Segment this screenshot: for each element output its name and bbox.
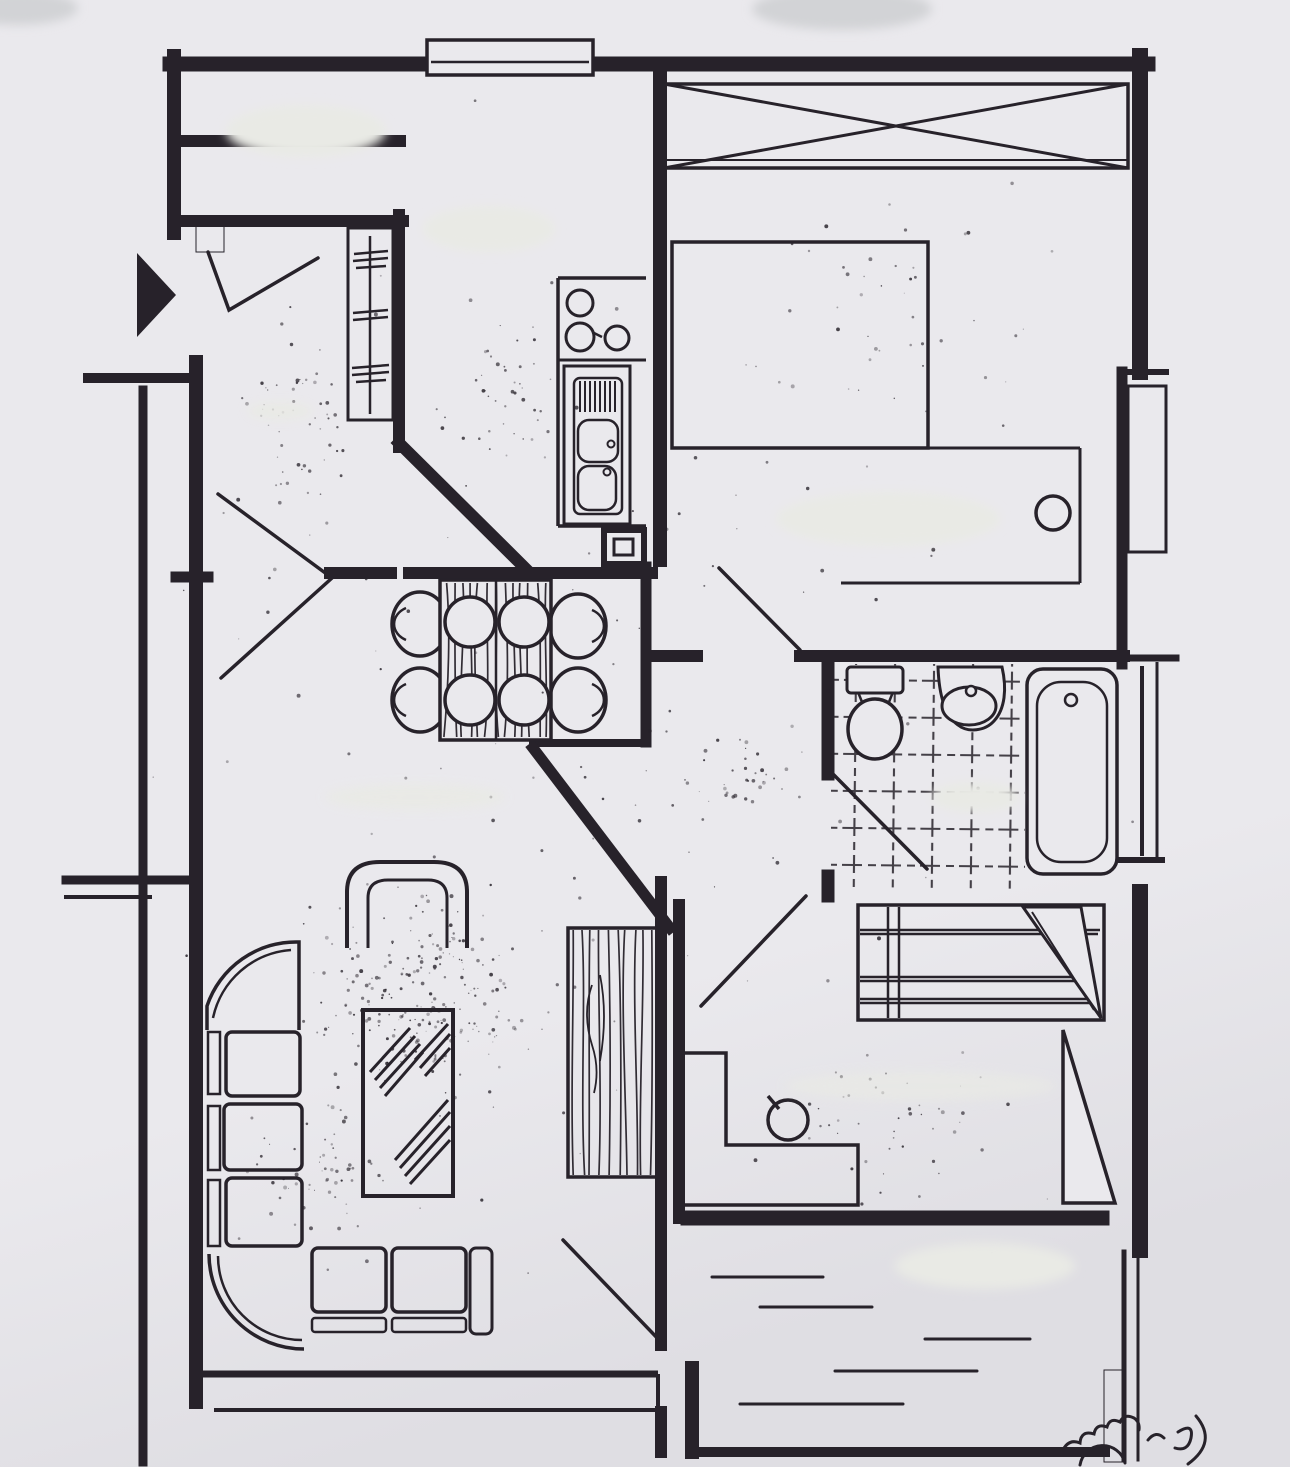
floor-plan-page [0, 0, 1290, 1467]
chair [550, 594, 606, 658]
toilet-icon [847, 667, 903, 759]
bathtub-icon [1027, 669, 1117, 874]
bedroom1-radiator-niche [1128, 386, 1166, 552]
top-window [427, 40, 593, 75]
bathroom [831, 664, 1117, 890]
floor-plan-canvas [0, 0, 1290, 1467]
chair [550, 668, 606, 732]
